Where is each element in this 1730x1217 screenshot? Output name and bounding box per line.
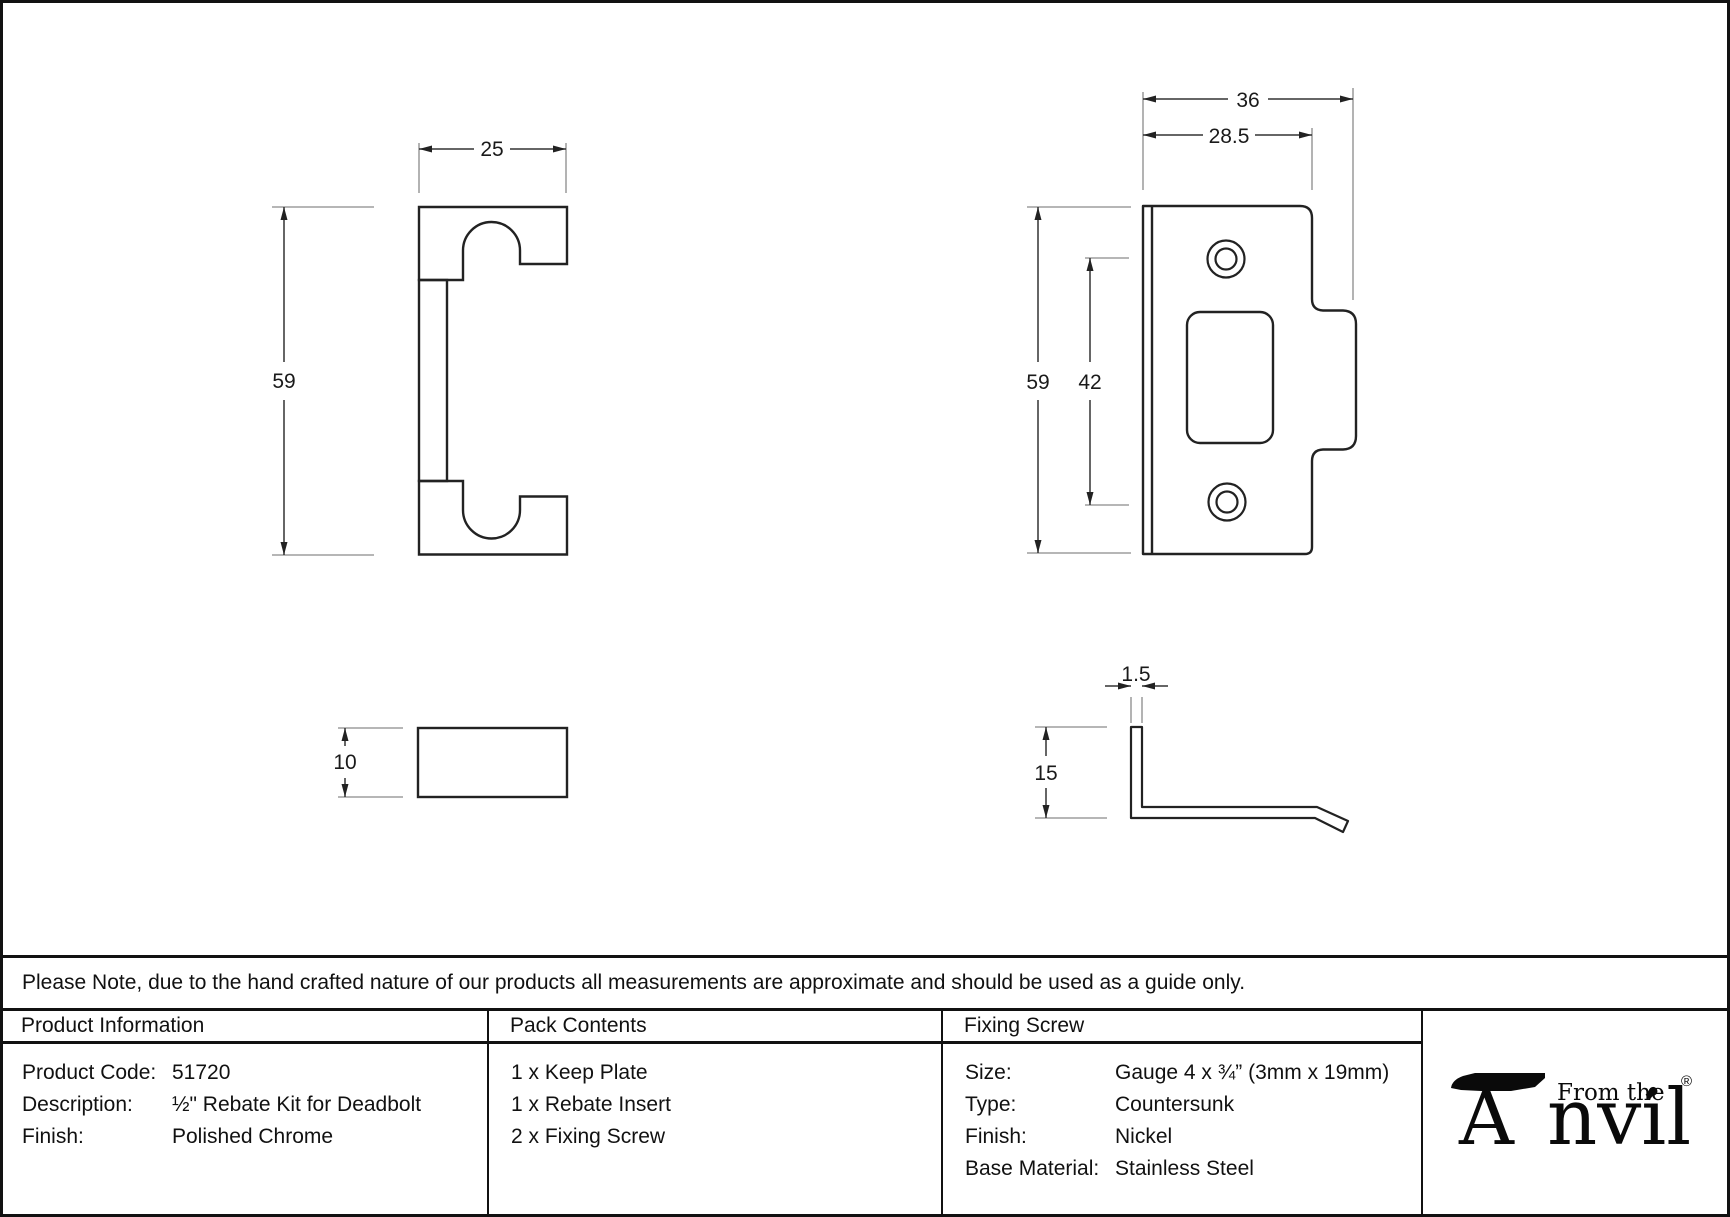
dimension-arrowheads: [281, 96, 1354, 819]
product-info-table: Product Information Product Code: 51720 …: [0, 1008, 1730, 1217]
screw-hole-bottom-outer: [1209, 484, 1246, 521]
dim-keep-plate-width-label: 28.5: [1209, 125, 1250, 148]
fixing-screw-body: Size: Gauge 4 x ¾” (3mm x 19mm) Type: Co…: [943, 1044, 1421, 1185]
brand-logo-cell: A nvil From the ♦ ®: [1423, 1011, 1730, 1217]
product-information-header: Product Information: [0, 1011, 487, 1044]
screw-hole-bottom-inner: [1217, 492, 1238, 513]
pack-contents-header: Pack Contents: [489, 1011, 941, 1044]
brand-column: A nvil From the ♦ ®: [1423, 1011, 1730, 1217]
pack-item: 1 x Keep Plate: [511, 1057, 931, 1089]
product-information-column: Product Information Product Code: 51720 …: [0, 1011, 489, 1217]
dim-keep-height-label: 59: [1026, 371, 1049, 394]
dim-keep-lip-height-label: 15: [1034, 762, 1057, 785]
product-information-body: Product Code: 51720 Description: ½" Reba…: [0, 1044, 487, 1153]
table-row: Finish: Nickel: [965, 1121, 1411, 1153]
table-row: Base Material: Stainless Steel: [965, 1153, 1411, 1185]
screw-hole-top-outer: [1208, 241, 1245, 278]
product-code-value: 51720: [172, 1057, 477, 1089]
table-row: Type: Countersunk: [965, 1089, 1411, 1121]
extension-lines: [272, 88, 1353, 818]
screw-size-value: Gauge 4 x ¾” (3mm x 19mm): [1115, 1057, 1411, 1089]
logo-letter-a: A: [1458, 1073, 1515, 1156]
pack-item: 2 x Fixing Screw: [511, 1121, 931, 1153]
screw-size-label: Size:: [965, 1057, 1115, 1089]
dim-insert-width-label: 25: [480, 138, 503, 161]
dimension-labels: 25 59 10 36 28.5 59 42 1.5 15: [272, 89, 1259, 785]
description-label: Description:: [22, 1089, 172, 1121]
measurement-note-bar: Please Note, due to the hand crafted nat…: [0, 955, 1730, 1008]
dim-insert-thickness-label: 10: [333, 751, 356, 774]
dim-keep-overall-width-label: 36: [1236, 89, 1259, 112]
finish-label: Finish:: [22, 1121, 172, 1153]
keep-plate-front-view: [1143, 206, 1356, 554]
keep-side-outline: [1131, 727, 1348, 832]
screw-type-label: Type:: [965, 1089, 1115, 1121]
screw-hole-top-inner: [1216, 249, 1237, 270]
insert-web-outline: [419, 280, 447, 481]
base-material-label: Base Material:: [965, 1153, 1115, 1185]
logo-registered-mark: ®: [1681, 1073, 1692, 1090]
product-code-label: Product Code:: [22, 1057, 172, 1089]
table-row: Finish: Polished Chrome: [22, 1121, 477, 1153]
pack-contents-column: Pack Contents 1 x Keep Plate 1 x Rebate …: [489, 1011, 943, 1217]
insert-top-block-outline: [419, 207, 567, 280]
fixing-screw-header: Fixing Screw: [943, 1011, 1421, 1044]
pack-contents-body: 1 x Keep Plate 1 x Rebate Insert 2 x Fix…: [489, 1044, 941, 1153]
table-row: Product Code: 51720: [22, 1057, 477, 1089]
dim-insert-height-label: 59: [272, 370, 295, 393]
table-row: Description: ½" Rebate Kit for Deadbolt: [22, 1089, 477, 1121]
table-row: Size: Gauge 4 x ¾” (3mm x 19mm): [965, 1057, 1411, 1089]
dim-keep-hole-spacing-label: 42: [1078, 371, 1101, 394]
keep-plate-outline: [1143, 206, 1356, 554]
bolt-cutout: [1187, 312, 1273, 443]
spec-sheet-page: 25 59 10 36 28.5 59 42 1.5 15 Please Not…: [0, 0, 1730, 1217]
insert-side-outline: [418, 728, 567, 797]
pack-item: 1 x Rebate Insert: [511, 1089, 931, 1121]
rebate-insert-side-view: [418, 728, 567, 797]
screw-finish-value: Nickel: [1115, 1121, 1411, 1153]
insert-bottom-block-outline: [419, 481, 567, 555]
technical-drawing: 25 59 10 36 28.5 59 42 1.5 15: [0, 0, 1730, 956]
base-material-value: Stainless Steel: [1115, 1153, 1411, 1185]
measurement-note-text: Please Note, due to the hand crafted nat…: [22, 971, 1245, 995]
description-value: ½" Rebate Kit for Deadbolt: [172, 1089, 477, 1121]
fixing-screw-column: Fixing Screw Size: Gauge 4 x ¾” (3mm x 1…: [943, 1011, 1423, 1217]
finish-value: Polished Chrome: [172, 1121, 477, 1153]
screw-finish-label: Finish:: [965, 1121, 1115, 1153]
logo-diamond-icon: ♦: [1645, 1084, 1654, 1104]
from-the-anvil-logo: A nvil From the ♦ ®: [1451, 1072, 1703, 1156]
rebate-insert-front-view: [419, 207, 567, 555]
dim-keep-thickness-label: 1.5: [1121, 663, 1150, 686]
screw-type-value: Countersunk: [1115, 1089, 1411, 1121]
keep-plate-side-view: [1131, 727, 1348, 832]
